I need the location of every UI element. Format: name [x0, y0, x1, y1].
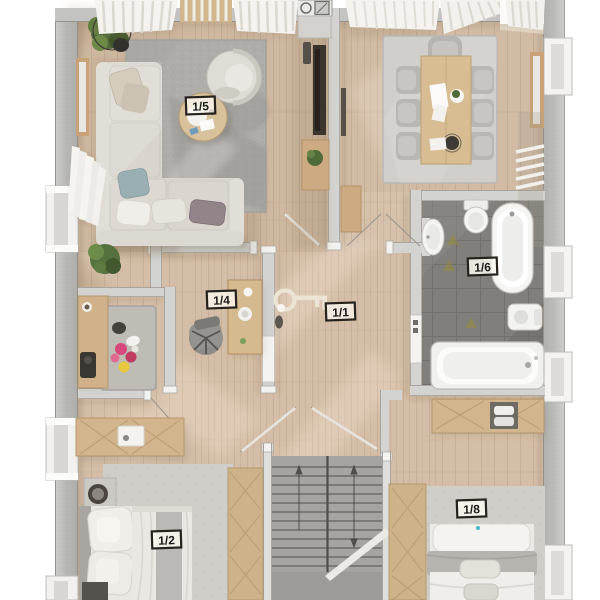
svg-text:1/5: 1/5	[192, 99, 209, 114]
svg-text:1/2: 1/2	[158, 533, 175, 548]
svg-text:1/6: 1/6	[474, 260, 491, 275]
svg-text:1/1: 1/1	[332, 305, 349, 320]
svg-text:1/4: 1/4	[213, 293, 230, 308]
svg-text:1/8: 1/8	[463, 502, 480, 517]
